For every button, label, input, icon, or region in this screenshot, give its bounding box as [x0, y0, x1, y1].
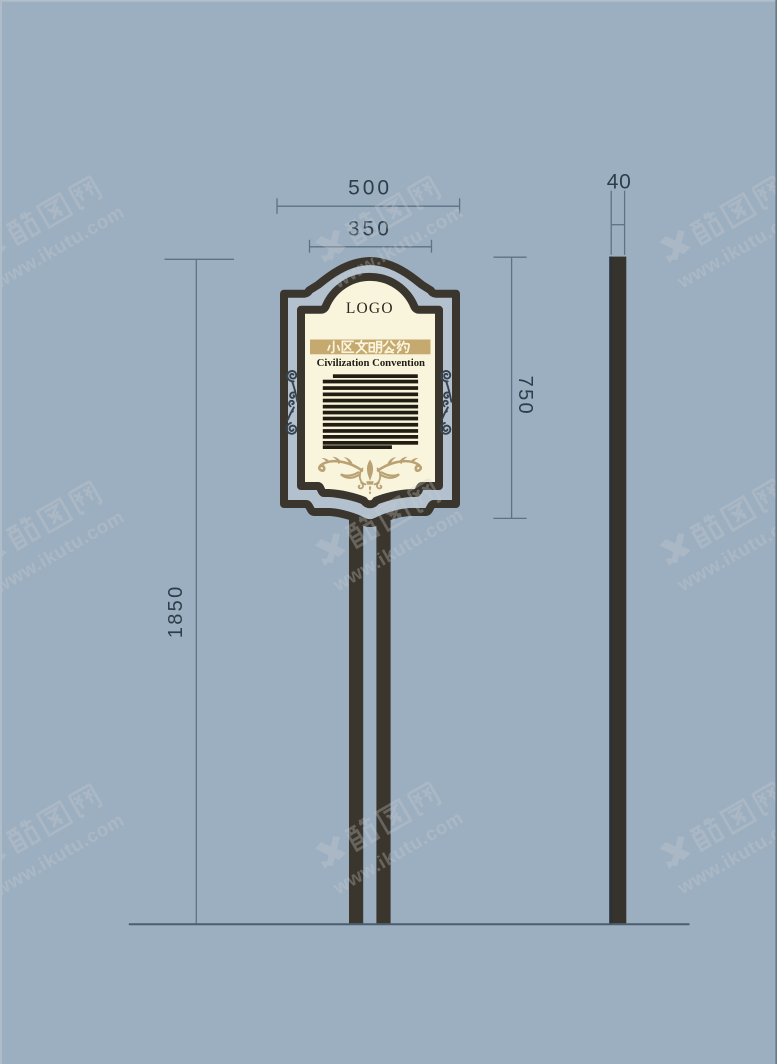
svg-text:Civilization Convention: Civilization Convention	[317, 357, 425, 369]
svg-text:500: 500	[348, 177, 392, 200]
svg-text:40: 40	[607, 171, 632, 194]
svg-text:1850: 1850	[165, 584, 187, 638]
svg-text:LOGO: LOGO	[346, 300, 394, 317]
svg-text:750: 750	[514, 376, 536, 416]
